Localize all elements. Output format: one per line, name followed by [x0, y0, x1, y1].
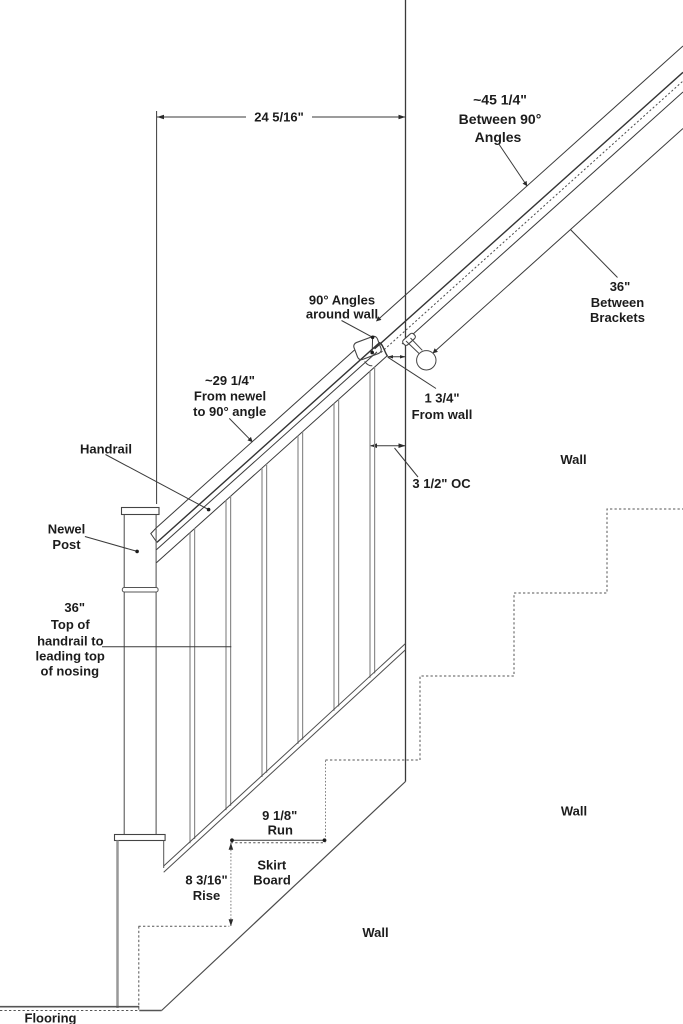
svg-text:Top of: Top of — [51, 617, 90, 632]
svg-text:Run: Run — [268, 823, 293, 838]
svg-text:around wall: around wall — [306, 307, 378, 322]
svg-text:24 5/16": 24 5/16" — [254, 110, 304, 125]
svg-text:Between: Between — [591, 295, 645, 310]
svg-text:36": 36" — [64, 600, 85, 615]
svg-text:3 1/2" OC: 3 1/2" OC — [412, 476, 471, 491]
svg-text:to 90° angle: to 90° angle — [193, 404, 266, 419]
svg-text:Wall: Wall — [560, 452, 586, 467]
svg-text:Between 90°: Between 90° — [459, 111, 542, 127]
svg-text:Wall: Wall — [561, 804, 587, 819]
svg-text:36": 36" — [610, 279, 631, 294]
svg-text:9 1/8": 9 1/8" — [262, 808, 297, 823]
svg-text:~29 1/4": ~29 1/4" — [205, 373, 255, 388]
svg-text:handrail to: handrail to — [37, 634, 104, 649]
svg-text:1 3/4": 1 3/4" — [424, 391, 459, 406]
svg-text:From wall: From wall — [412, 407, 473, 422]
svg-text:Angles: Angles — [475, 129, 522, 145]
svg-text:8 3/16": 8 3/16" — [185, 872, 227, 887]
svg-text:Brackets: Brackets — [590, 310, 645, 325]
svg-text:90° Angles: 90° Angles — [309, 292, 375, 307]
svg-text:of nosing: of nosing — [41, 663, 100, 678]
svg-text:Post: Post — [52, 537, 81, 552]
svg-text:From newel: From newel — [194, 389, 266, 404]
svg-text:Wall: Wall — [362, 925, 388, 940]
svg-text:Handrail: Handrail — [80, 441, 132, 456]
svg-text:Skirt: Skirt — [257, 858, 287, 873]
svg-text:Newel: Newel — [48, 522, 86, 537]
svg-text:leading top: leading top — [36, 649, 105, 664]
svg-text:Board: Board — [253, 873, 291, 888]
svg-text:Rise: Rise — [193, 888, 220, 903]
svg-text:~45 1/4": ~45 1/4" — [473, 92, 527, 108]
svg-text:Flooring: Flooring — [25, 1011, 77, 1024]
